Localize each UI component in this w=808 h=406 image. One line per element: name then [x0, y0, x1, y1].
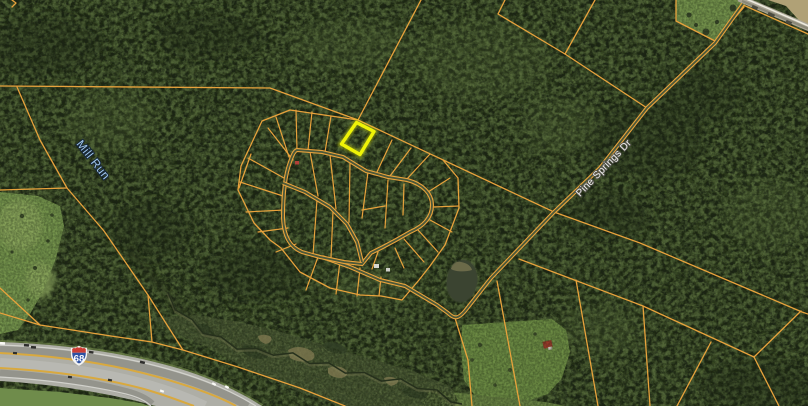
- svg-text:68: 68: [74, 353, 85, 364]
